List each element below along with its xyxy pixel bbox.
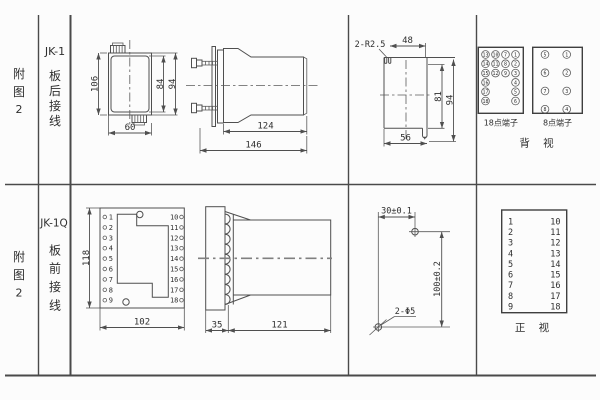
dim-body-depth-label: 121 xyxy=(271,320,287,330)
terminal-number: 6 xyxy=(514,99,517,105)
table-number: 13 xyxy=(550,249,560,259)
terminal-pin xyxy=(103,236,107,240)
figure-label-char: 图 xyxy=(13,85,25,99)
terminal-number: 7 xyxy=(504,52,507,58)
terminal-number: 18 xyxy=(170,297,178,305)
terminal-number: 14 xyxy=(483,62,489,68)
table-number: 11 xyxy=(550,228,560,238)
terminal-number: 5 xyxy=(514,90,517,96)
dim-cutout-outer-label: 94 xyxy=(446,95,456,106)
front-table-numbers: 110211312413514615716817918 xyxy=(508,217,561,312)
mounting-hole xyxy=(123,299,129,305)
terminal-box-8-title: 8点端子 xyxy=(543,118,572,128)
terminal-bump xyxy=(225,274,230,284)
terminal-pin xyxy=(180,246,184,250)
terminal-bump xyxy=(225,214,230,224)
side-terminal-bumps xyxy=(225,214,230,304)
terminal-number: 17 xyxy=(170,286,178,294)
table-number: 2 xyxy=(508,228,513,238)
terminal-number: 8 xyxy=(504,62,507,68)
figure-label-char: 附 xyxy=(13,250,25,264)
terminal-pin xyxy=(103,288,107,292)
terminal-number: 6 xyxy=(109,266,113,274)
terminal-bump xyxy=(225,244,230,254)
table-number: 6 xyxy=(508,271,513,281)
terminal-number: 8 xyxy=(109,286,113,294)
mounting-hole xyxy=(137,211,143,217)
dim-inner-height-label: 84 xyxy=(156,79,166,90)
terminal-bump xyxy=(225,284,230,294)
model-label: JK-1 xyxy=(44,45,65,58)
table-number: 8 xyxy=(508,292,513,302)
terminal-number: 4 xyxy=(514,80,517,86)
terminal-number: 17 xyxy=(483,90,489,96)
wiring-label-char: 板 xyxy=(49,69,61,83)
terminal-box-18-title: 18点端子 xyxy=(484,118,518,128)
terminal-number: 4 xyxy=(565,107,568,113)
terminal-pin xyxy=(180,278,184,282)
terminal-number: 2 xyxy=(109,224,113,232)
terminal-pin xyxy=(103,246,107,250)
wiring-label-char: 线 xyxy=(49,114,61,128)
terminal-pin xyxy=(180,226,184,230)
terminal-number: 9 xyxy=(504,71,507,77)
terminal-pin xyxy=(103,215,107,219)
table-number: 17 xyxy=(550,292,560,302)
terminal-number: 10 xyxy=(493,52,499,58)
relay-dimension-drawing-page: 附 图 2 JK-1 板 后 接 线 附 图 2 JK-1Q 板 前 接 线 xyxy=(0,0,600,400)
terminal-number: 3 xyxy=(565,89,568,95)
slot-arrow-mark xyxy=(423,137,426,140)
wiring-label-char: 后 xyxy=(49,84,61,98)
table-number: 7 xyxy=(508,281,513,291)
wiring-label-char: 接 xyxy=(49,279,61,294)
wiring-label-char: 接 xyxy=(49,98,61,113)
hole-diameter-label: 2-Φ5 xyxy=(395,307,415,317)
terminal-number: 5 xyxy=(544,52,547,58)
dim-front-height-label: 118 xyxy=(82,250,92,266)
terminal-pin xyxy=(180,288,184,292)
table-number: 3 xyxy=(508,239,513,249)
rear-18-terminals: 131415161718101112789123456 xyxy=(482,51,520,105)
terminal-pin xyxy=(180,298,184,302)
front-view-label: 正 视 xyxy=(515,321,554,334)
terminal-number: 11 xyxy=(493,62,499,68)
table-number: 5 xyxy=(508,260,513,270)
dim-front-width-label: 102 xyxy=(134,318,150,328)
terminal-number: 13 xyxy=(483,52,489,58)
terminal-bump xyxy=(225,254,230,264)
panel-cutout-view: 48 2-R2.5 81 94 56 xyxy=(355,36,456,147)
terminal-number: 8 xyxy=(544,107,547,113)
terminal-number: 12 xyxy=(170,234,178,242)
terminal-pin xyxy=(180,267,184,271)
terminal-pin xyxy=(180,215,184,219)
terminal-number: 7 xyxy=(544,89,547,95)
terminal-pin xyxy=(180,257,184,261)
figure-label-char: 附 xyxy=(13,67,25,81)
model-label: JK-1Q xyxy=(39,218,68,230)
dim-hole-spacing-v-label: 100±0.2 xyxy=(433,261,443,297)
table-grid xyxy=(5,15,596,376)
terminal-pin xyxy=(103,278,107,282)
dim-cutout-bottom-label: 56 xyxy=(400,134,411,144)
table-number: 14 xyxy=(550,260,560,270)
terminal-number: 2 xyxy=(565,71,568,77)
rear-view-label: 背 视 xyxy=(519,137,558,150)
jk1q-front-view: 110211312413514615716817918 118 102 xyxy=(82,208,185,331)
dim-hole-spacing-h-label: 30±0.1 xyxy=(381,207,412,217)
slot-radius-label: 2-R2.5 xyxy=(355,40,386,50)
table-number: 16 xyxy=(550,281,560,291)
terminal-pin xyxy=(180,236,184,240)
wiring-label-char: 前 xyxy=(49,261,61,276)
terminal-number: 10 xyxy=(170,214,178,222)
table-number: 10 xyxy=(550,217,560,227)
terminal-number: 13 xyxy=(170,245,178,253)
dim-mid-height-label: 94 xyxy=(168,79,178,90)
terminal-number: 9 xyxy=(109,297,113,305)
table-number: 12 xyxy=(550,239,560,249)
dim-body-depth-label: 124 xyxy=(257,122,273,132)
figure-label-char: 图 xyxy=(13,268,25,282)
rear-8-terminals: 56781234 xyxy=(541,51,570,113)
terminal-number: 3 xyxy=(514,71,517,77)
dim-case-height-label: 106 xyxy=(91,76,101,92)
terminal-pin xyxy=(103,298,107,302)
wiring-label-char: 板 xyxy=(49,244,61,258)
terminal-number: 11 xyxy=(170,224,178,232)
terminal-number: 18 xyxy=(483,99,489,105)
figure-label-char: 2 xyxy=(16,287,23,300)
terminal-pin xyxy=(103,267,107,271)
terminal-number: 4 xyxy=(109,245,113,253)
dim-cutout-top-label: 48 xyxy=(402,36,413,46)
figure-label-char: 2 xyxy=(16,103,23,116)
jk1-case-rear-view: 106 84 94 60 xyxy=(91,40,178,136)
front-terminal-table: 110211312413514615716817918 正 视 xyxy=(502,210,567,334)
table-number: 18 xyxy=(550,303,560,313)
table-number: 9 xyxy=(508,303,513,313)
terminal-number: 5 xyxy=(109,255,113,263)
front-view-terminals: 110211312413514615716817918 xyxy=(103,214,183,305)
terminal-number: 1 xyxy=(514,52,517,58)
terminal-number: 16 xyxy=(483,80,489,86)
terminal-number: 2 xyxy=(514,62,517,68)
terminal-number: 1 xyxy=(565,52,568,58)
rear-terminal-views: 131415161718101112789123456 56781234 18点… xyxy=(478,47,582,149)
terminal-number: 1 xyxy=(109,214,113,222)
dim-plate-depth-label: 35 xyxy=(212,320,223,330)
wiring-label-char: 线 xyxy=(49,299,61,313)
terminal-number: 3 xyxy=(109,234,113,242)
table-number: 4 xyxy=(508,249,513,259)
header-bottom-row: 附 图 2 JK-1Q 板 前 接 线 xyxy=(13,218,68,313)
terminal-number: 15 xyxy=(483,71,489,77)
terminal-pin xyxy=(103,257,107,261)
drilling-template: 30±0.1 100±0.2 2-Φ5 xyxy=(370,207,451,336)
jk1-case-side-view: 124 146 xyxy=(186,47,318,154)
terminal-number: 15 xyxy=(170,266,178,274)
terminal-number: 6 xyxy=(544,71,547,77)
table-number: 1 xyxy=(508,217,513,227)
terminal-number: 7 xyxy=(109,276,113,284)
terminal-bump xyxy=(225,264,230,274)
jk1q-side-view: 35 121 xyxy=(198,207,332,333)
terminal-bump xyxy=(225,224,230,234)
terminal-number: 14 xyxy=(170,255,178,263)
terminal-pin xyxy=(103,226,107,230)
table-number: 15 xyxy=(550,271,560,281)
terminal-box-8 xyxy=(533,47,583,113)
terminal-number: 16 xyxy=(170,276,178,284)
technical-drawing-canvas: 附 图 2 JK-1 板 后 接 线 附 图 2 JK-1Q 板 前 接 线 xyxy=(0,0,600,400)
terminal-number: 12 xyxy=(493,71,499,77)
dim-cutout-inner-label: 81 xyxy=(434,91,444,102)
terminal-bump xyxy=(225,234,230,244)
dim-total-depth-label: 146 xyxy=(245,141,261,151)
dim-case-width-label: 60 xyxy=(125,123,136,133)
